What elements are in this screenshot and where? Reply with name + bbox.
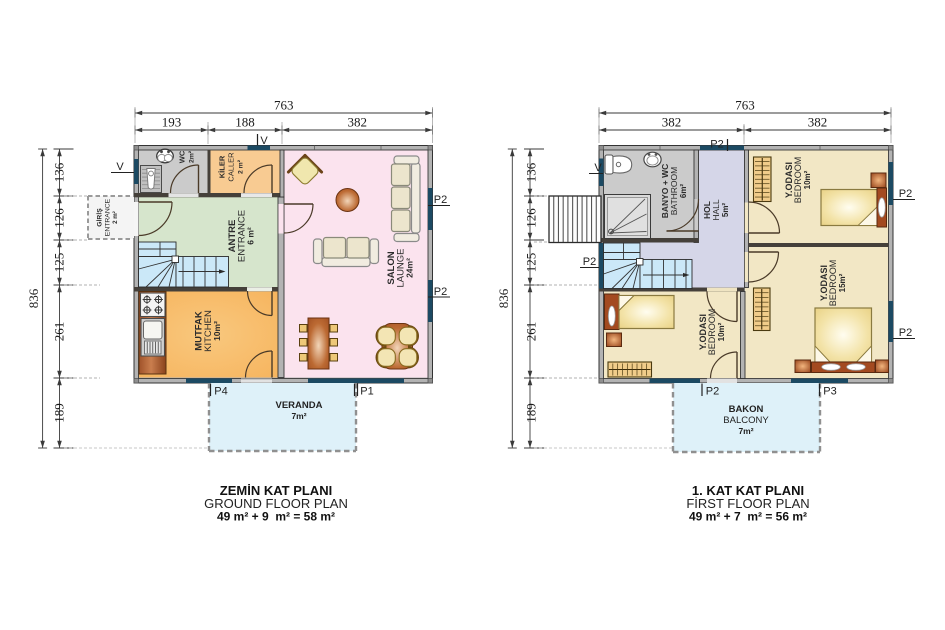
svg-text:382: 382	[662, 115, 682, 130]
svg-text:P2: P2	[899, 188, 912, 200]
svg-text:15m²: 15m²	[838, 273, 847, 292]
svg-text:V: V	[260, 135, 268, 147]
svg-text:49 m² + 9 m² = 58 m²: 49 m² + 9 m² = 58 m²	[217, 510, 335, 524]
svg-text:P2: P2	[706, 386, 719, 398]
svg-text:189: 189	[52, 403, 67, 423]
svg-text:189: 189	[524, 403, 539, 423]
svg-text:BALCONY: BALCONY	[723, 415, 769, 426]
svg-text:2m²: 2m²	[188, 150, 195, 163]
svg-text:P2: P2	[434, 194, 447, 206]
svg-text:BEDROOM: BEDROOM	[707, 309, 717, 356]
svg-text:BEDROOM: BEDROOM	[828, 260, 838, 307]
svg-text:261: 261	[524, 322, 539, 342]
svg-text:188: 188	[235, 115, 255, 130]
svg-text:836: 836	[496, 288, 511, 308]
svg-text:ENTRANCE: ENTRANCE	[104, 198, 111, 236]
svg-text:P4: P4	[214, 386, 227, 398]
svg-text:193: 193	[162, 115, 182, 130]
svg-text:BAKON: BAKON	[729, 404, 764, 415]
svg-text:P3: P3	[823, 386, 836, 398]
svg-text:125: 125	[52, 253, 67, 273]
svg-text:5m²: 5m²	[721, 203, 730, 218]
svg-text:P2: P2	[583, 256, 596, 268]
svg-text:136: 136	[52, 162, 67, 182]
svg-text:126: 126	[52, 208, 67, 228]
svg-text:763: 763	[735, 98, 755, 113]
svg-text:836: 836	[26, 288, 41, 308]
svg-text:BATHROOM: BATHROOM	[669, 167, 679, 215]
svg-text:P1: P1	[360, 386, 373, 398]
svg-text:P2: P2	[899, 327, 912, 339]
svg-text:GİRİŞ: GİRİŞ	[95, 208, 103, 227]
svg-text:382: 382	[808, 115, 828, 130]
svg-text:763: 763	[274, 98, 294, 113]
svg-text:CALLER: CALLER	[227, 152, 236, 182]
svg-text:VERANDA: VERANDA	[276, 400, 323, 411]
svg-text:WC: WC	[178, 150, 187, 163]
svg-text:382: 382	[348, 115, 368, 130]
svg-text:P2: P2	[710, 139, 723, 151]
svg-text:2 m²: 2 m²	[237, 159, 244, 174]
svg-text:KİLER: KİLER	[218, 155, 227, 178]
svg-text:126: 126	[524, 208, 539, 228]
svg-text:24m²: 24m²	[404, 258, 414, 278]
svg-text:49 m² + 7 m² = 56 m²: 49 m² + 7 m² = 56 m²	[689, 510, 807, 524]
svg-text:7m²: 7m²	[291, 411, 306, 421]
svg-text:10m²: 10m²	[212, 321, 222, 341]
svg-text:HALL: HALL	[711, 199, 721, 221]
svg-text:125: 125	[524, 253, 539, 273]
svg-text:BEDROOM: BEDROOM	[793, 157, 803, 204]
svg-text:2 m²: 2 m²	[112, 211, 119, 224]
svg-text:6m²: 6m²	[679, 184, 688, 199]
svg-text:7m²: 7m²	[738, 426, 753, 436]
svg-text:P2: P2	[434, 286, 447, 298]
svg-text:10m²: 10m²	[803, 170, 812, 189]
svg-text:10m²: 10m²	[717, 322, 726, 341]
svg-text:261: 261	[52, 322, 67, 342]
svg-text:136: 136	[524, 162, 539, 182]
svg-text:V: V	[594, 162, 602, 174]
svg-text:V: V	[116, 161, 124, 173]
svg-text:6 m²: 6 m²	[245, 227, 255, 245]
